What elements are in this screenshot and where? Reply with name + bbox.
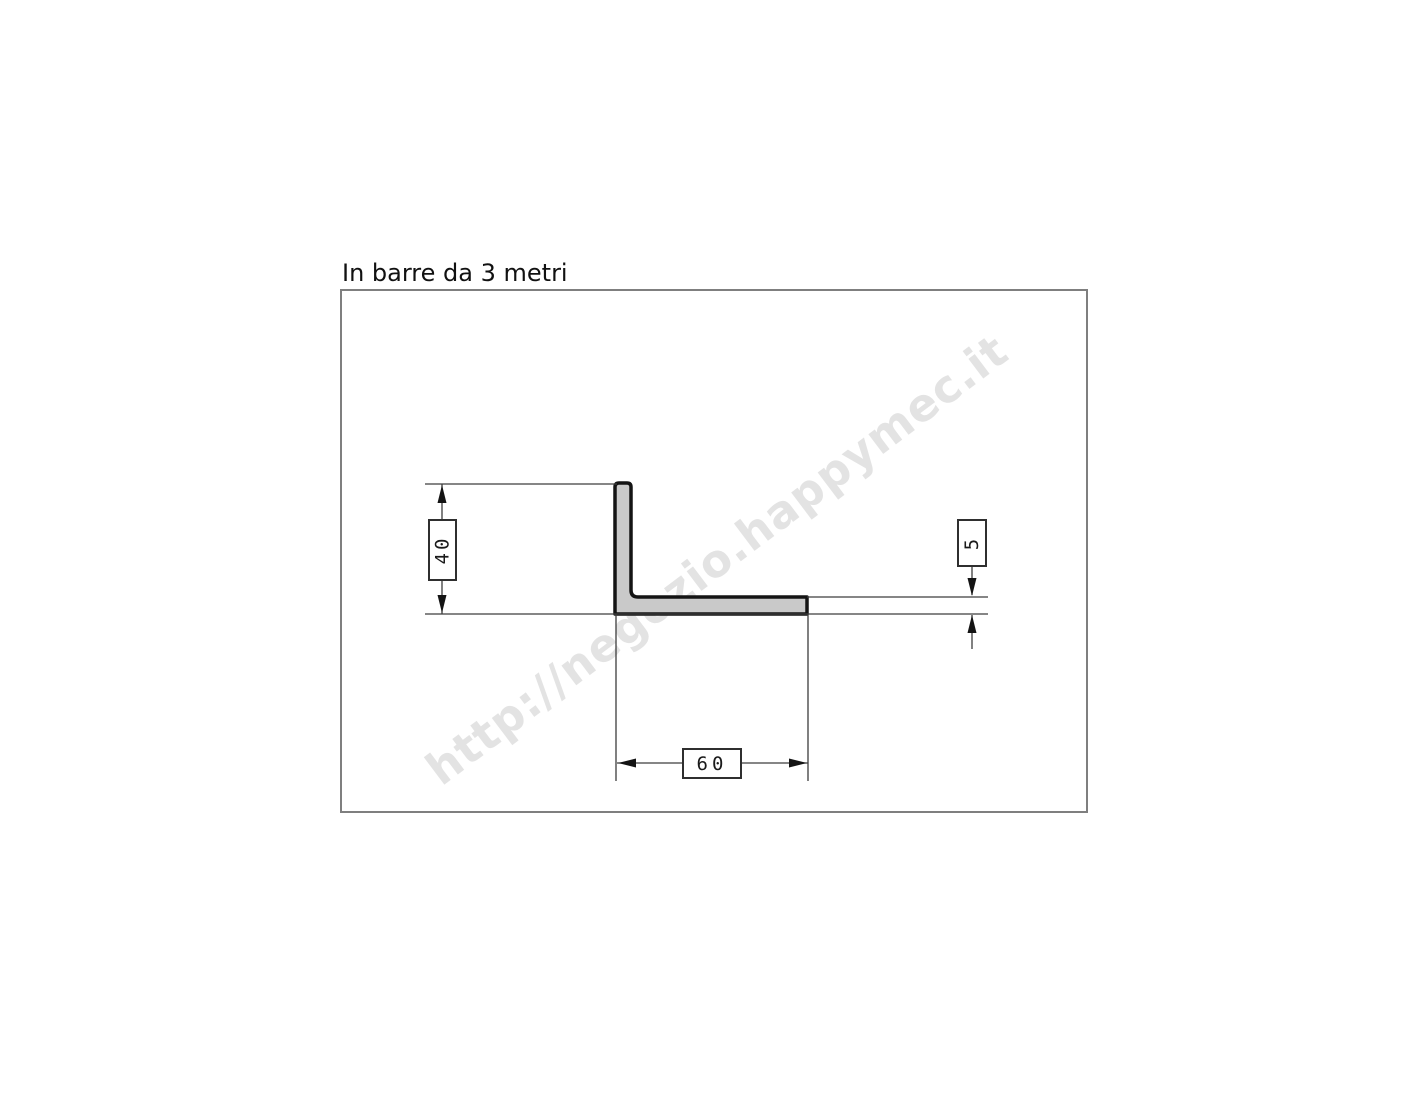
arrowhead-thickness-down [968, 578, 977, 596]
page: In barre da 3 metri http://negozio.happy… [0, 0, 1422, 1100]
dimension-label-width: 60 [682, 748, 742, 779]
dimension-value-height: 40 [432, 536, 454, 565]
arrowhead-height-bottom [438, 595, 447, 613]
arrowhead-thickness-up [968, 615, 977, 633]
arrowhead-width-left [618, 759, 636, 768]
arrowhead-width-right [789, 759, 807, 768]
dimension-value-thickness: 5 [961, 536, 983, 550]
l-profile-shape [615, 483, 807, 614]
dimension-label-thickness: 5 [957, 519, 987, 567]
drawing-title: In barre da 3 metri [342, 260, 568, 286]
dimension-value-width: 60 [697, 753, 728, 775]
arrowhead-height-top [438, 485, 447, 503]
dimension-label-height: 40 [428, 519, 457, 581]
